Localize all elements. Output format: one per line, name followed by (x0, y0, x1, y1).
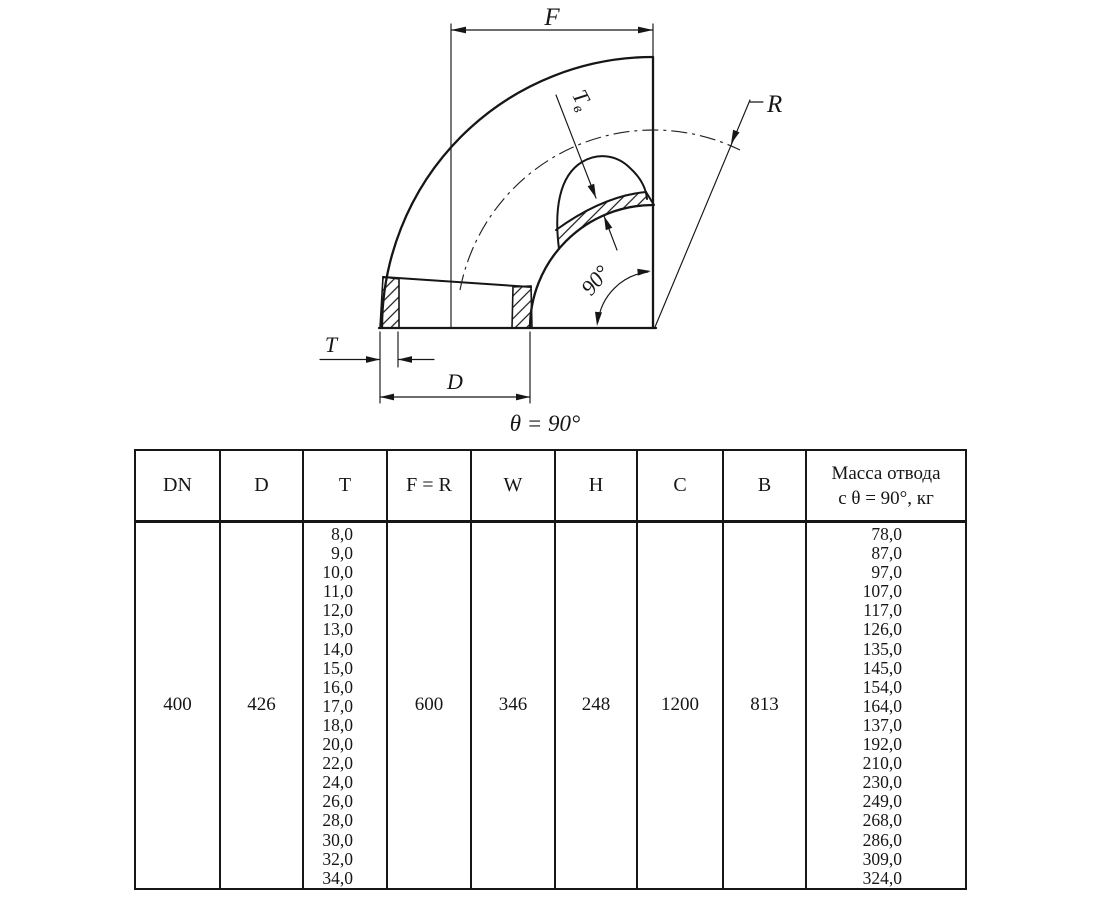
cell-line: 107,0 (807, 582, 902, 601)
header-w: W (471, 450, 555, 522)
wall-section-left (380, 277, 399, 328)
cell-line: 210,0 (807, 754, 902, 773)
cell-line: 34,0 (304, 869, 353, 888)
header-t: T (303, 450, 387, 522)
f-arrow-left (451, 27, 466, 34)
tv-arrow-lower (604, 216, 612, 230)
cell-line: 12,0 (304, 601, 353, 620)
r-label: R (766, 91, 782, 118)
cell-line: 32,0 (304, 850, 353, 869)
cell-line: 87,0 (807, 544, 902, 563)
cell-line: 137,0 (807, 716, 902, 735)
cell-line: 13,0 (304, 620, 353, 639)
elbow-drawing: F R 90° Tв T D θ = 90° (0, 0, 1100, 448)
cell-line: 154,0 (807, 678, 902, 697)
tv-label: Tв (564, 85, 599, 116)
cell-line: 26,0 (304, 792, 353, 811)
angle-arrow-upper (637, 269, 651, 276)
header-f-r: F = R (387, 450, 471, 522)
cell-line: 309,0 (807, 850, 902, 869)
t-values-cell: 8,09,010,011,012,013,014,015,016,017,018… (303, 522, 387, 889)
f-label: F (543, 4, 560, 31)
mass-values-list: 78,087,097,0107,0117,0126,0135,0145,0154… (807, 523, 965, 888)
cell-line: 78,0 (807, 525, 902, 544)
cell-line: 324,0 (807, 869, 902, 888)
cell-line: 8,0 (304, 525, 353, 544)
d-arrow-left (380, 394, 394, 401)
header-b: B (723, 450, 806, 522)
cell-line: 192,0 (807, 735, 902, 754)
cell-line: 15,0 (304, 659, 353, 678)
cell-line: 10,0 (304, 563, 353, 582)
cell-line: 268,0 (807, 811, 902, 830)
c-value: 1200 (637, 522, 723, 889)
cell-line: 22,0 (304, 754, 353, 773)
cell-line: 18,0 (304, 716, 353, 735)
header-d: D (220, 450, 303, 522)
theta-caption: θ = 90° (510, 411, 581, 436)
end-face-top-edge (383, 277, 531, 287)
d-arrow-right (516, 394, 530, 401)
mass-values-cell: 78,087,097,0107,0117,0126,0135,0145,0154… (806, 522, 966, 889)
table-row: 400 426 8,09,010,011,012,013,014,015,016… (135, 522, 966, 889)
header-mass: Масса отвода с θ = 90°, кг (806, 450, 966, 522)
cell-line: 30,0 (304, 831, 353, 850)
header-dn: DN (135, 450, 220, 522)
w-value: 346 (471, 522, 555, 889)
cell-line: 16,0 (304, 678, 353, 697)
f-arrow-right (638, 27, 653, 34)
page: F R 90° Tв T D θ = 90° (0, 0, 1100, 900)
t-label: T (325, 332, 339, 357)
cell-line: 14,0 (304, 640, 353, 659)
r-arrowhead (731, 130, 740, 144)
cell-line: 20,0 (304, 735, 353, 754)
cell-line: 126,0 (807, 620, 902, 639)
t-arrow-right (398, 356, 412, 363)
cell-line: 24,0 (304, 773, 353, 792)
t-arrow-left (366, 356, 380, 363)
dimension-table: DN D T F = R W H C B Масса отвода с θ = … (134, 449, 967, 890)
dn-value: 400 (135, 522, 220, 889)
cell-line: 286,0 (807, 831, 902, 850)
cell-line: 249,0 (807, 792, 902, 811)
header-row: DN D T F = R W H C B Масса отвода с θ = … (135, 450, 966, 522)
cell-line: 117,0 (807, 601, 902, 620)
cell-line: 135,0 (807, 640, 902, 659)
cell-line: 11,0 (304, 582, 353, 601)
cell-line: 97,0 (807, 563, 902, 582)
tv-arrow-upper (588, 184, 596, 198)
b-value: 813 (723, 522, 806, 889)
cell-line: 9,0 (304, 544, 353, 563)
header-h: H (555, 450, 637, 522)
wall-section-right (512, 286, 532, 328)
angle-arrow-lower (595, 312, 602, 326)
cell-line: 145,0 (807, 659, 902, 678)
t-values-list: 8,09,010,011,012,013,014,015,016,017,018… (304, 523, 386, 888)
cell-line: 230,0 (807, 773, 902, 792)
header-c: C (637, 450, 723, 522)
d-label: D (446, 369, 463, 394)
d-value: 426 (220, 522, 303, 889)
f-r-value: 600 (387, 522, 471, 889)
cell-line: 164,0 (807, 697, 902, 716)
h-value: 248 (555, 522, 637, 889)
cell-line: 17,0 (304, 697, 353, 716)
cell-line: 28,0 (304, 811, 353, 830)
